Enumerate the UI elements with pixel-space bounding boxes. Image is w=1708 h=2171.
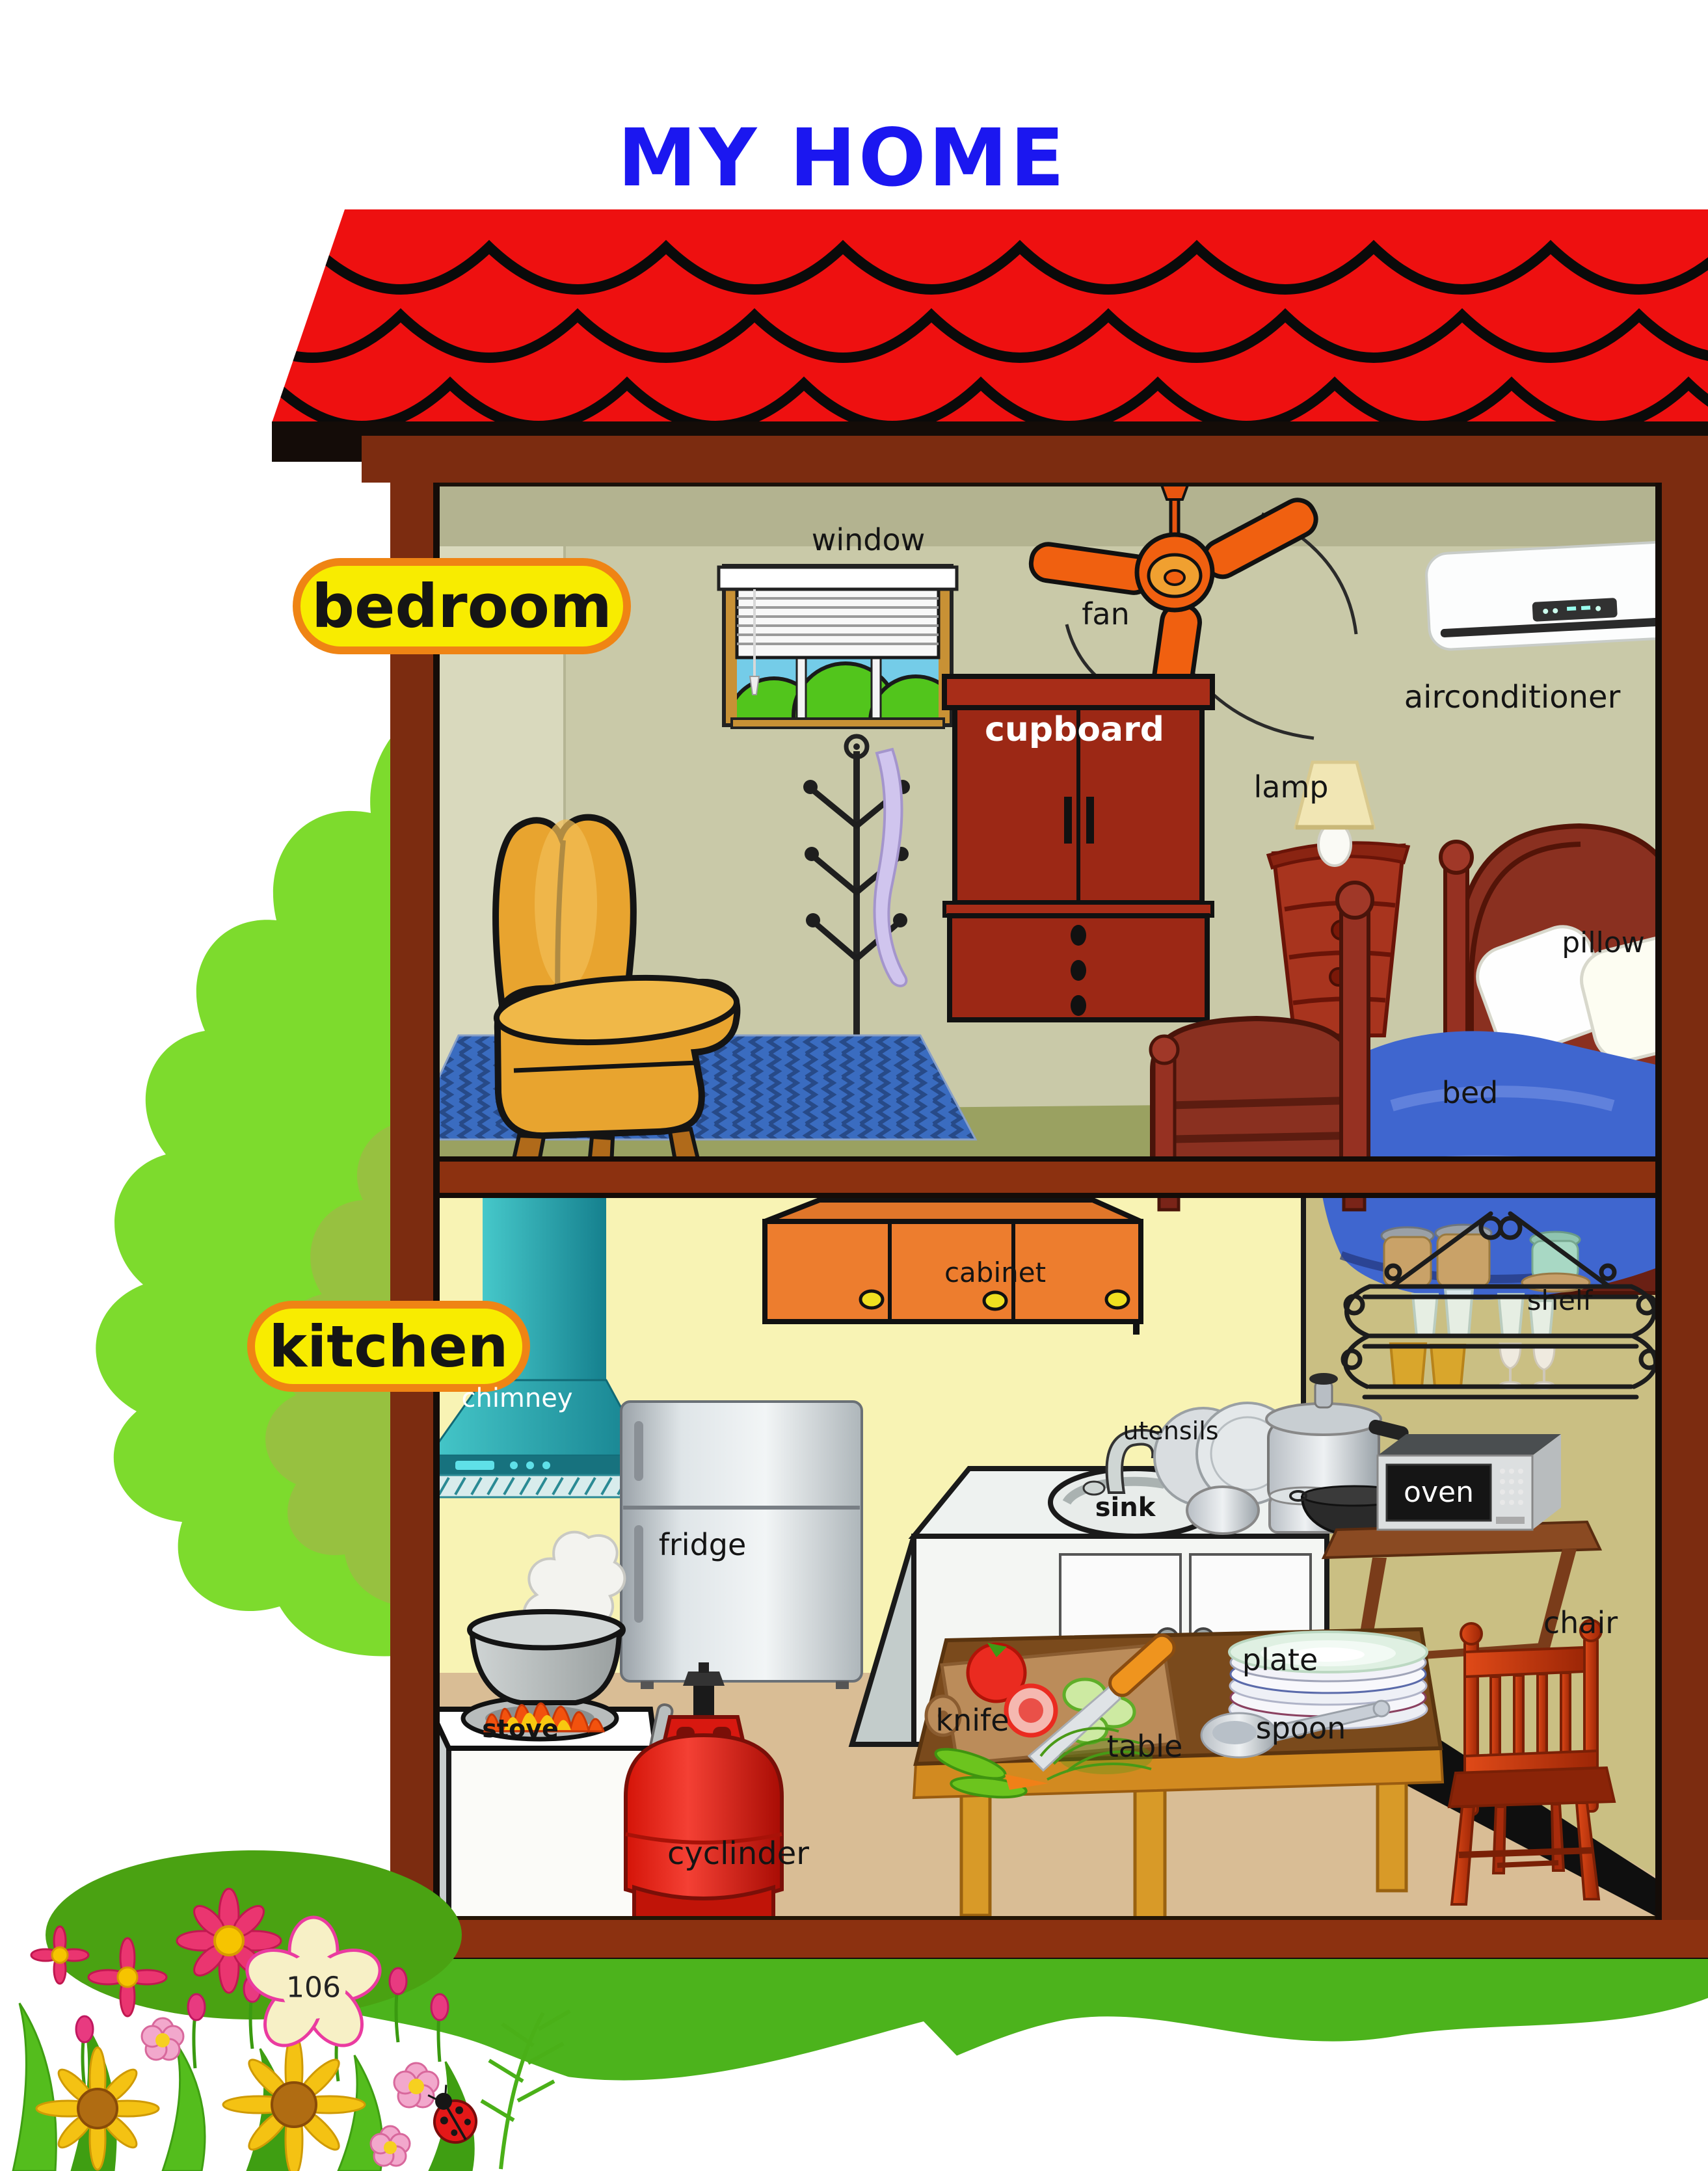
kitchen-label-text: kitchen	[269, 1313, 509, 1380]
yellow-daisy-2	[223, 2034, 365, 2171]
bedroom-label-text: bedroom	[312, 572, 612, 641]
bed-label: bed	[1442, 1078, 1499, 1108]
airconditioner-illustration	[1425, 541, 1687, 650]
spoon-label: spoon	[1256, 1713, 1346, 1743]
page-title: MY HOME	[572, 112, 1112, 204]
lamp-label: lamp	[1254, 772, 1329, 802]
chimney-label: chimney	[461, 1385, 572, 1411]
kitchen-label: kitchen	[247, 1301, 530, 1392]
worksheet-page: MY HOME bedroom kitchen window fan airco…	[0, 0, 1708, 2171]
fridge-label: fridge	[659, 1530, 747, 1560]
oven-label: oven	[1404, 1478, 1474, 1507]
cabinet-label: cabinet	[944, 1259, 1046, 1286]
cylinder-label: cyclinder	[667, 1838, 809, 1869]
knife-label: knife	[935, 1705, 1009, 1735]
roof-illustration	[224, 209, 1708, 486]
tree-illustration	[96, 708, 437, 1656]
cupboard-label: cupboard	[985, 713, 1164, 747]
bedroom-label: bedroom	[293, 558, 631, 654]
sink-label: sink	[1095, 1495, 1156, 1521]
utensils-label: utensils	[1123, 1418, 1218, 1443]
table-label: table	[1107, 1731, 1183, 1761]
grass-illustration	[270, 1959, 1708, 2117]
shelf-label: shelf	[1527, 1287, 1593, 1314]
fan-label: fan	[1082, 599, 1130, 629]
stove-label: stove	[482, 1716, 558, 1741]
pillow-label: pillow	[1562, 929, 1645, 957]
plate-label: plate	[1242, 1645, 1318, 1675]
window-label: window	[812, 525, 926, 555]
nightstand-illustration	[1268, 843, 1408, 1035]
airconditioner-label: airconditioner	[1404, 682, 1621, 713]
chair-label: chair	[1543, 1608, 1618, 1638]
page-number: 106	[286, 1971, 341, 2005]
